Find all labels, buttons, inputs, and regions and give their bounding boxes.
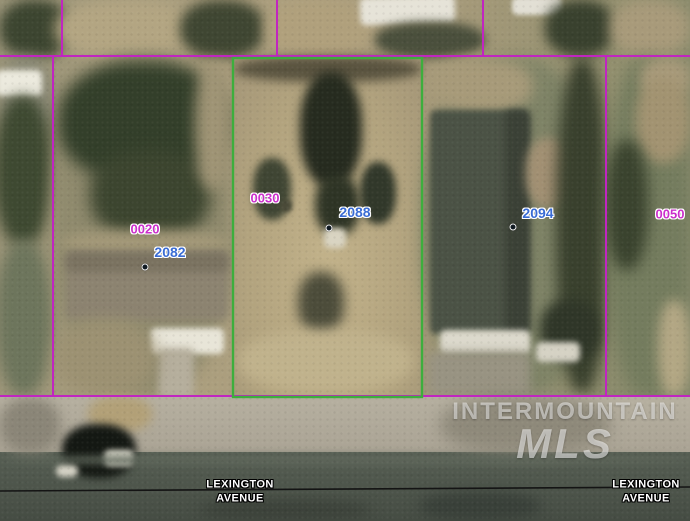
street-label-line2: AVENUE [612, 492, 680, 506]
street-label-line2: AVENUE [206, 492, 274, 506]
street-label-lexington-left: LEXINGTON AVENUE [206, 478, 274, 506]
parcel-lines-overlay [0, 0, 690, 521]
street-centerline [0, 487, 690, 491]
street-label-line1: LEXINGTON [612, 478, 680, 492]
street-label-lexington-right: LEXINGTON AVENUE [612, 478, 680, 506]
address-point-marker-2094 [510, 224, 517, 231]
address-label-2094: 2094 [522, 205, 553, 221]
address-label-2082: 2082 [154, 244, 185, 260]
parcel-label-0030: 0030 [251, 191, 280, 206]
parcel-label-0020: 0020 [131, 222, 160, 237]
aerial-parcel-map: INTERMOUNTAIN MLS 0020 0030 0050 2082 20… [0, 0, 690, 521]
address-label-2088: 2088 [339, 204, 370, 220]
street-label-line1: LEXINGTON [206, 478, 274, 492]
parcel-label-0050: 0050 [656, 207, 685, 222]
address-point-marker-2082 [142, 264, 149, 271]
address-point-marker-2088 [326, 225, 333, 232]
